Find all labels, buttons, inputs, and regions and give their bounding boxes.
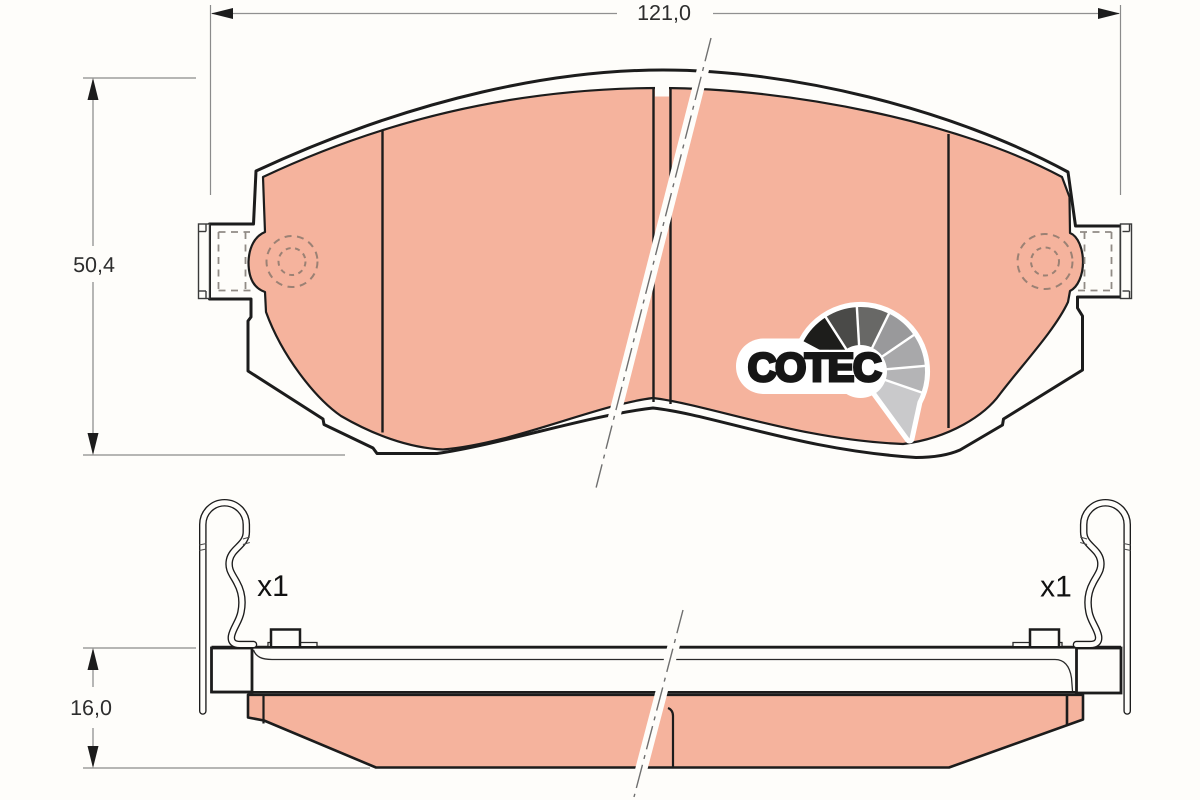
svg-text:x1: x1: [1040, 571, 1072, 604]
svg-text:16,0: 16,0: [70, 696, 112, 720]
svg-text:COTEC: COTEC: [748, 346, 881, 390]
svg-text:x1: x1: [257, 570, 289, 603]
svg-text:121,0: 121,0: [637, 1, 691, 25]
svg-text:50,4: 50,4: [73, 253, 115, 277]
